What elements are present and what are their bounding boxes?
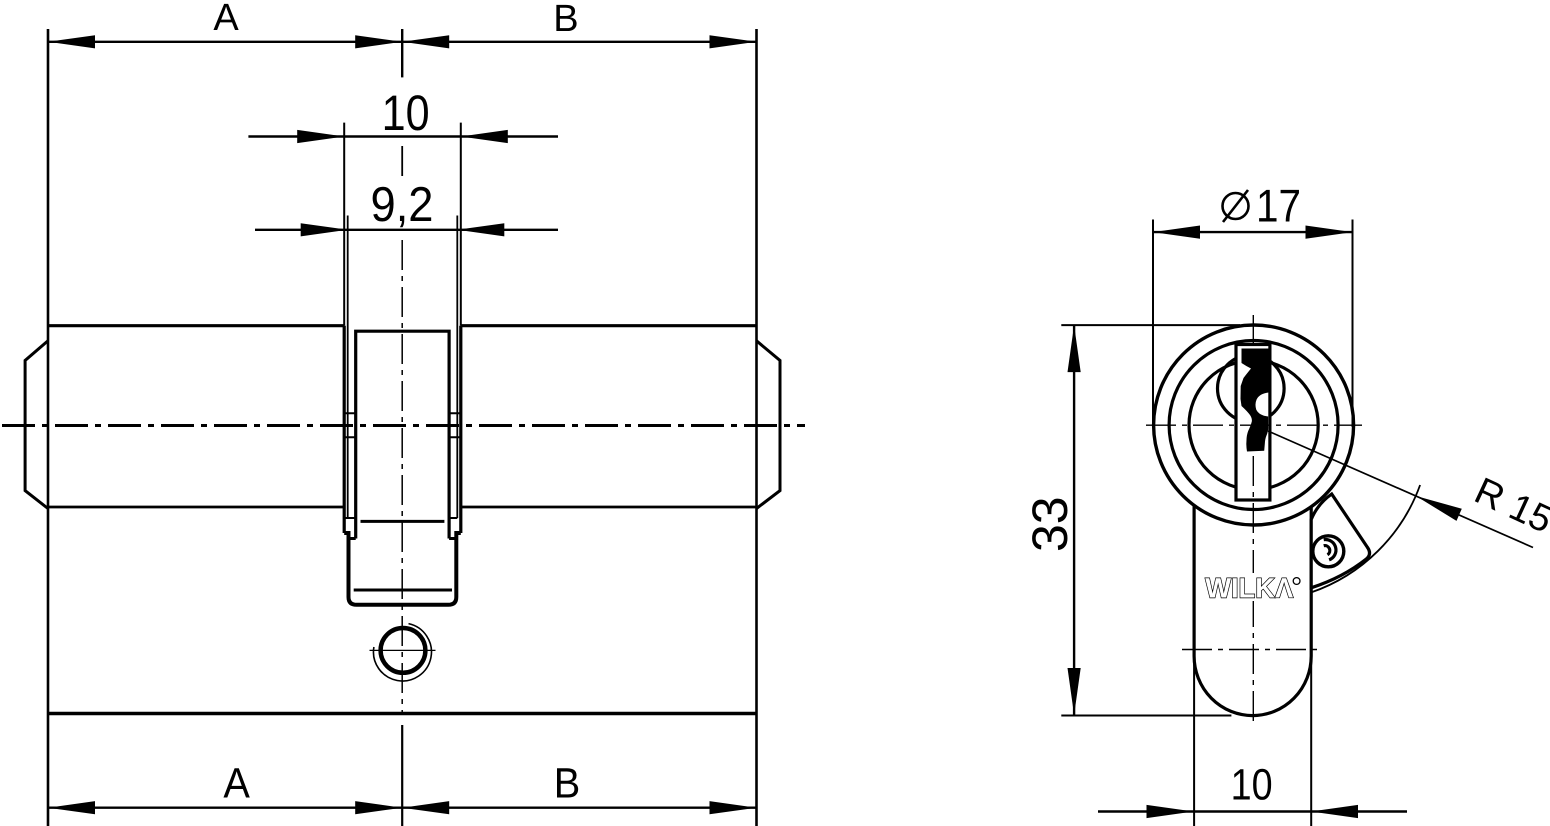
svg-text:B: B: [553, 0, 578, 40]
svg-text:A: A: [223, 761, 250, 808]
svg-text:B: B: [554, 761, 581, 808]
svg-text:10: 10: [1231, 761, 1273, 810]
svg-text:WILKΛ: WILKΛ: [1205, 573, 1293, 604]
svg-text:17: 17: [1256, 180, 1301, 232]
svg-text:A: A: [213, 0, 239, 39]
svg-text:33: 33: [1022, 496, 1078, 552]
svg-text:9,2: 9,2: [371, 178, 434, 232]
svg-text:10: 10: [382, 85, 430, 141]
